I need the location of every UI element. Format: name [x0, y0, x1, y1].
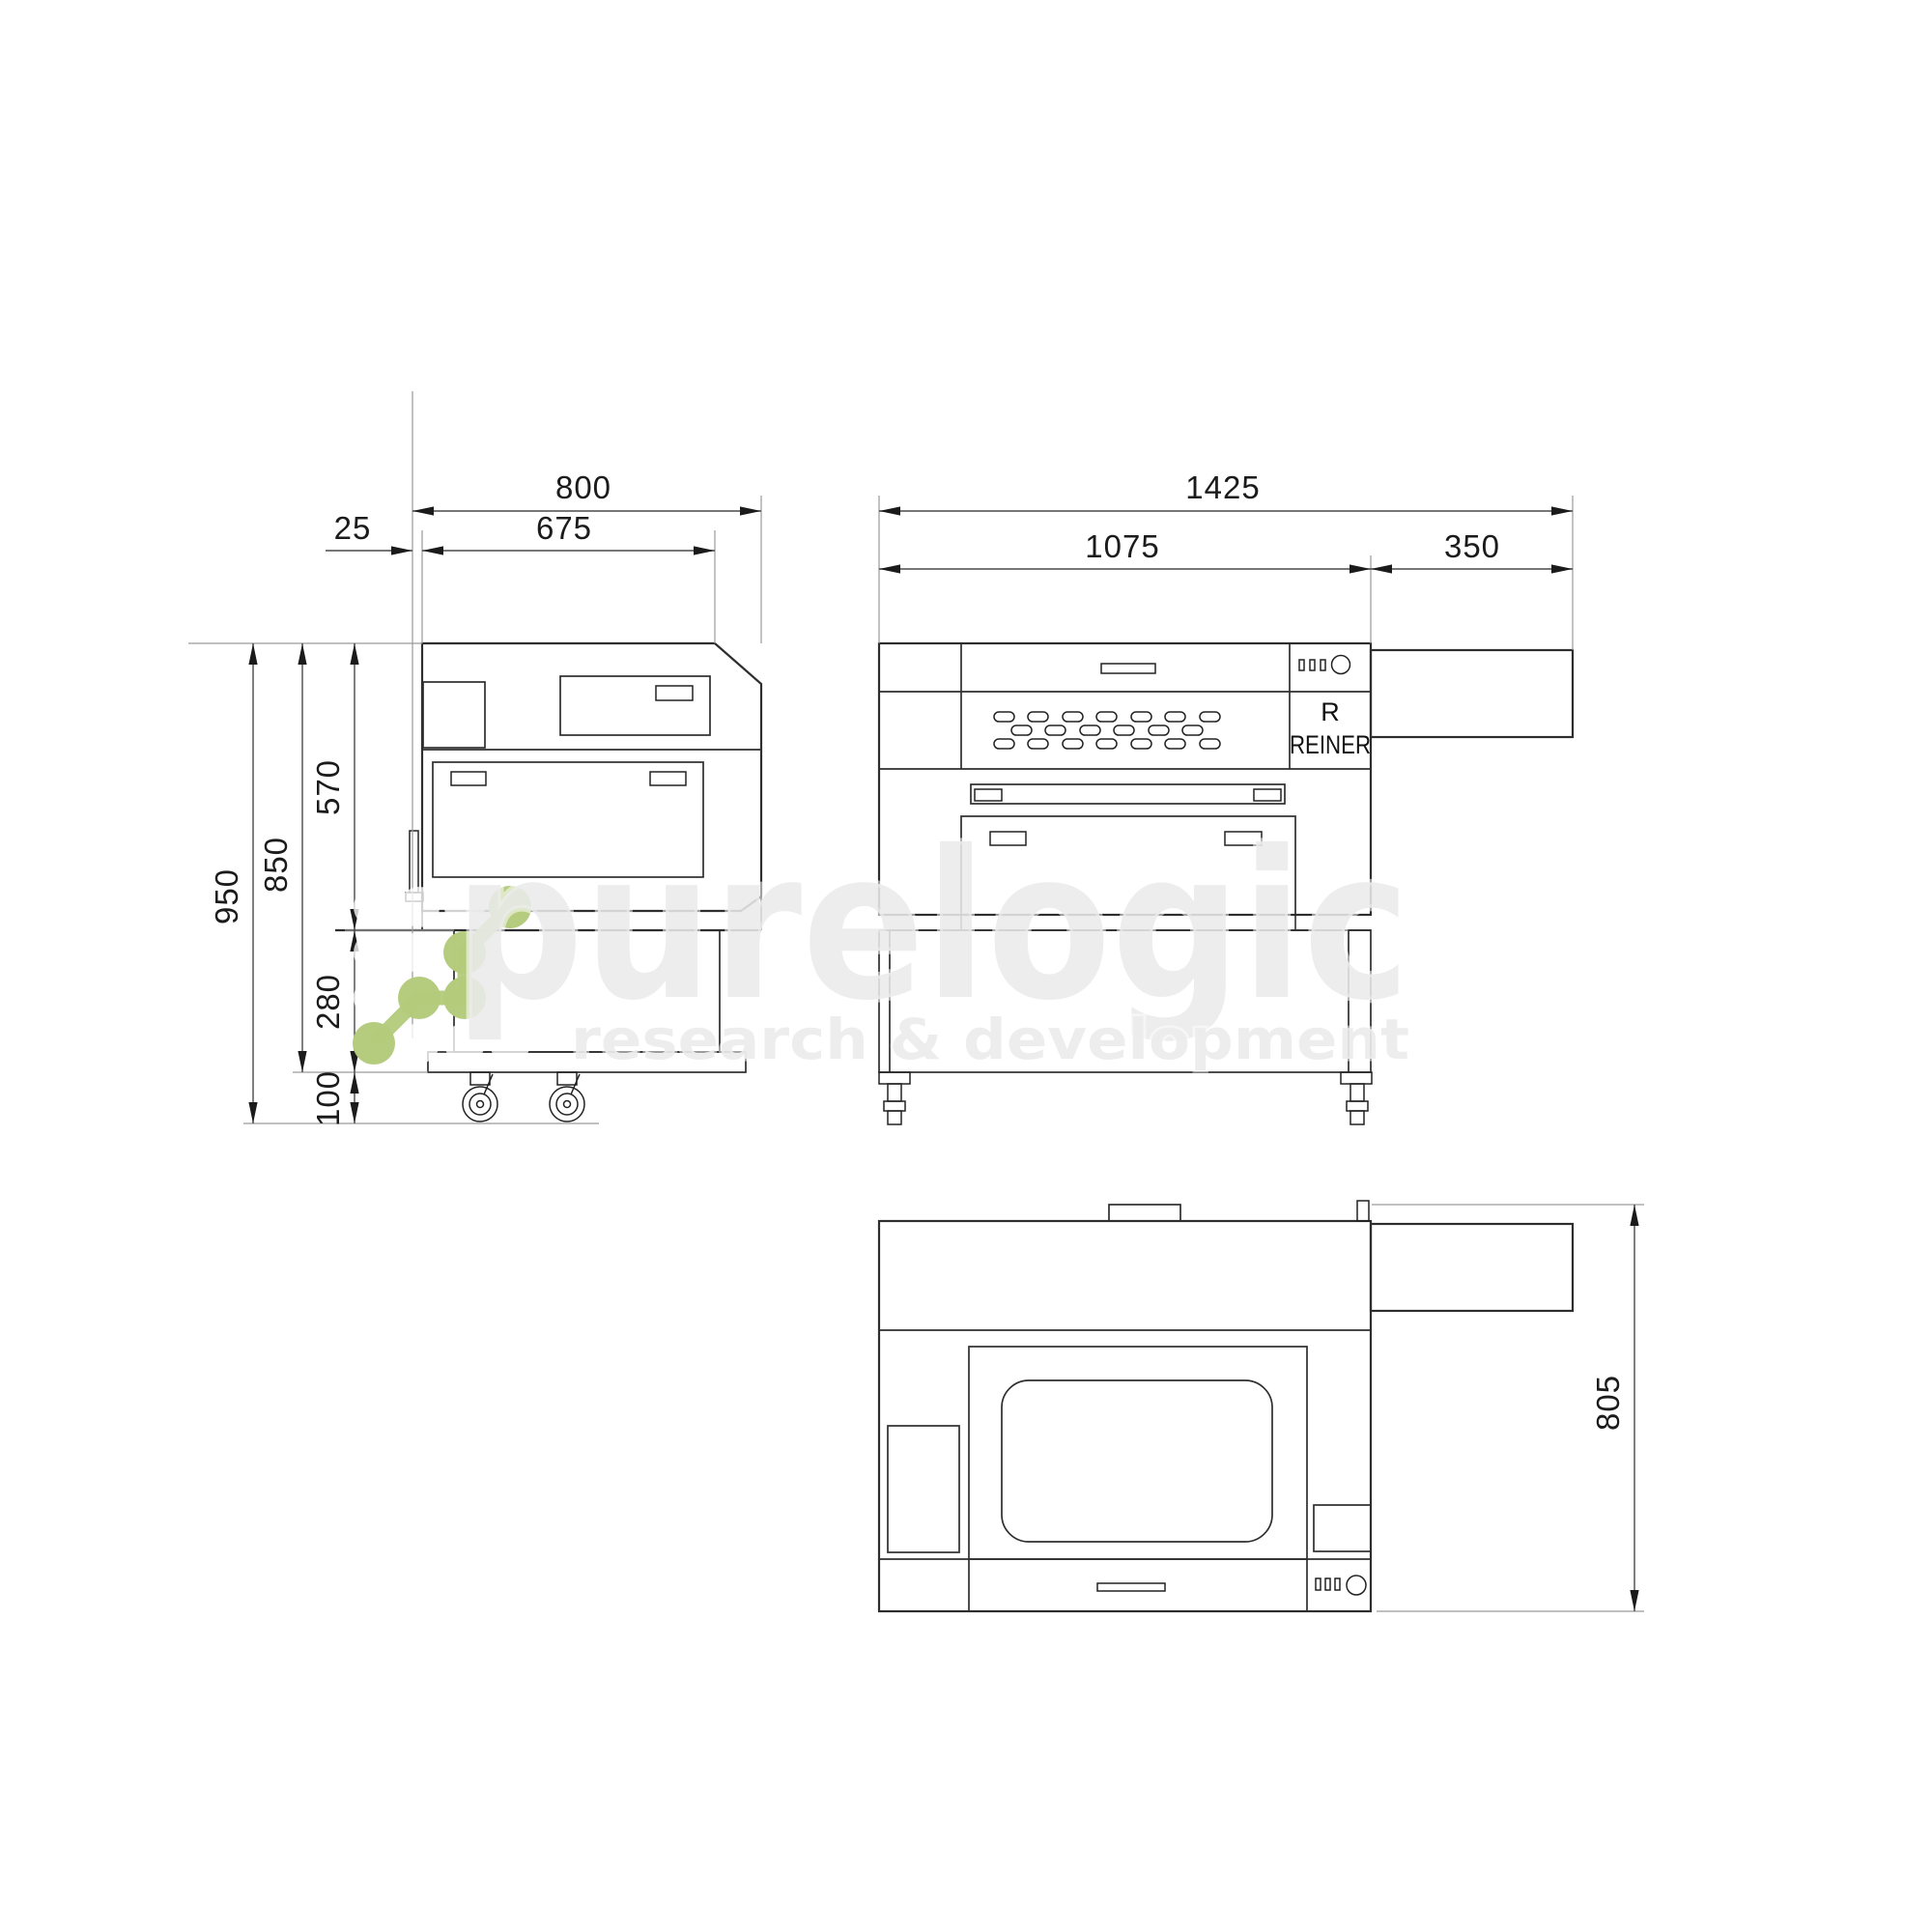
- dim-label-1425: 1425: [1185, 469, 1260, 505]
- vent-slot: [1165, 712, 1185, 722]
- caster-wheel-outer: [463, 1087, 497, 1122]
- dim-label-570: 570: [310, 759, 346, 815]
- caster-wheel-inner: [469, 1094, 491, 1115]
- vent-slot: [1131, 739, 1151, 749]
- control-knob: [1347, 1576, 1366, 1595]
- dim-label-950: 950: [209, 868, 244, 924]
- foot-collar: [884, 1101, 905, 1111]
- side-upper-panel: [560, 676, 710, 735]
- side-door-handle-right: [650, 772, 686, 785]
- caster-wheel-inner: [556, 1094, 578, 1115]
- dim-label-805: 805: [1590, 1375, 1626, 1431]
- side-upper-left-panel: [423, 682, 485, 748]
- top-view: [879, 1201, 1573, 1611]
- vent-slot: [1114, 725, 1134, 735]
- foot-bracket: [1341, 1072, 1372, 1084]
- brand-name: REINER: [1290, 730, 1371, 759]
- caster-bracket: [470, 1072, 490, 1085]
- plan-corner-stub: [1357, 1201, 1369, 1221]
- front-extension-box: [1371, 650, 1573, 737]
- foot-pad: [1350, 1111, 1364, 1124]
- foot-collar: [1347, 1101, 1368, 1111]
- front-lid-bar: [971, 784, 1285, 804]
- foot-pad: [888, 1111, 901, 1124]
- front-lid-latch-right: [1254, 789, 1281, 801]
- front-foot-right: [1341, 1072, 1372, 1124]
- vent-slot: [1045, 725, 1065, 735]
- vent-slot: [1028, 739, 1048, 749]
- plan-control-panel: [1316, 1576, 1366, 1595]
- front-top-handle-slot: [1101, 664, 1155, 673]
- dim-label-1075: 1075: [1085, 528, 1159, 564]
- control-button-2: [1325, 1578, 1330, 1590]
- plan-right-compartment: [1314, 1505, 1371, 1551]
- foot-bracket: [879, 1072, 910, 1084]
- front-foot-left: [879, 1072, 910, 1124]
- vent-slot: [1096, 712, 1117, 722]
- plan-lid-window: [1002, 1380, 1272, 1542]
- dim-label-25: 25: [334, 510, 372, 546]
- caster-hub: [477, 1101, 484, 1108]
- vent-slot: [1080, 725, 1100, 735]
- dim-label-675: 675: [536, 510, 592, 546]
- control-button-3: [1335, 1578, 1340, 1590]
- vent-slot: [1200, 712, 1220, 722]
- vent-slot: [1182, 725, 1203, 735]
- control-button-1: [1316, 1578, 1321, 1590]
- control-button-2: [1310, 660, 1315, 670]
- foot-stem: [888, 1084, 901, 1101]
- dimensional-drawing: R REINER: [0, 0, 1932, 1932]
- vent-slot: [1063, 739, 1083, 749]
- plan-handle-slot: [1097, 1583, 1165, 1591]
- vent-slot: [1200, 739, 1220, 749]
- watermark: purelogic research & development: [353, 807, 1410, 1072]
- control-button-1: [1299, 660, 1304, 670]
- plan-left-compartment: [888, 1426, 959, 1552]
- front-control-panel: [1299, 656, 1350, 674]
- caster-hub: [564, 1101, 571, 1108]
- control-button-3: [1321, 660, 1325, 670]
- caster-wheel-outer: [550, 1087, 584, 1122]
- vent-slot: [1063, 712, 1083, 722]
- vent-slot: [994, 712, 1014, 722]
- vent-slot: [1096, 739, 1117, 749]
- side-front-edge-strip: [410, 831, 418, 893]
- brand-letter: R: [1321, 697, 1340, 726]
- vent-slot: [1028, 712, 1048, 722]
- foot-stem: [1350, 1084, 1364, 1101]
- vent-slot: [1131, 712, 1151, 722]
- side-door-handle-left: [451, 772, 486, 785]
- plan-lid: [969, 1347, 1307, 1559]
- plan-extension-box: [1371, 1224, 1573, 1311]
- dim-label-350: 350: [1444, 528, 1500, 564]
- vent-slot: [1149, 725, 1169, 735]
- vent-slot: [994, 739, 1014, 749]
- technical-drawing-page: R REINER: [0, 0, 1932, 1932]
- side-upper-panel-handle: [656, 686, 693, 700]
- caster-bracket: [557, 1072, 577, 1085]
- vent-grill: [994, 712, 1220, 749]
- dim-label-850: 850: [258, 837, 294, 893]
- side-caster-rear: [550, 1072, 584, 1122]
- front-lid-latch-left: [975, 789, 1002, 801]
- vent-slot: [1165, 739, 1185, 749]
- dim-label-800: 800: [555, 469, 611, 505]
- plan-exhaust-stub: [1109, 1205, 1180, 1221]
- dim-label-280: 280: [310, 974, 346, 1030]
- control-knob: [1332, 656, 1350, 674]
- brand-badge: R REINER: [1290, 697, 1371, 759]
- watermark-tagline-text: research & development: [571, 1007, 1409, 1072]
- dim-label-100: 100: [310, 1070, 346, 1126]
- vent-slot: [1011, 725, 1032, 735]
- side-caster-front: [463, 1072, 497, 1122]
